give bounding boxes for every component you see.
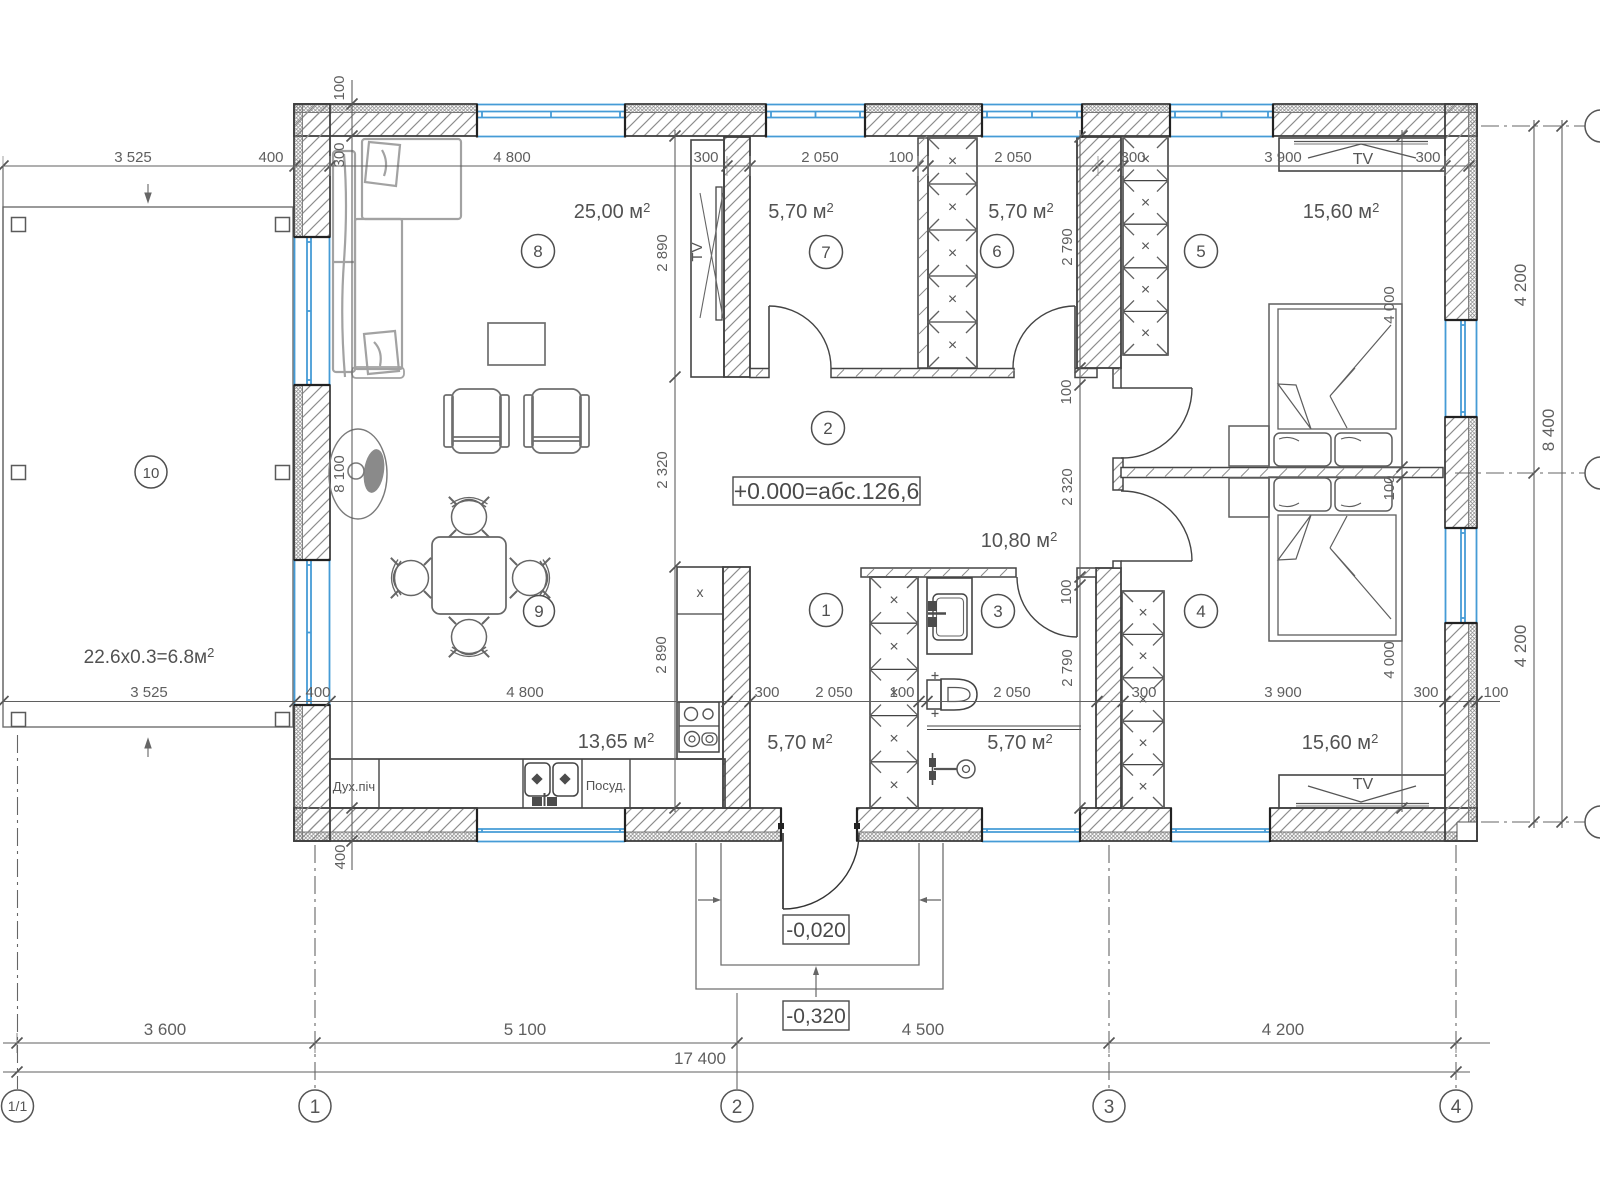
svg-text:2: 2 bbox=[732, 1097, 743, 1118]
svg-text:TV: TV bbox=[1353, 776, 1374, 793]
svg-text:2 790: 2 790 bbox=[1059, 228, 1076, 266]
svg-text:400: 400 bbox=[305, 684, 330, 701]
svg-text:3 900: 3 900 bbox=[1264, 684, 1302, 701]
svg-text:x: x bbox=[697, 584, 704, 600]
svg-text:3: 3 bbox=[1104, 1097, 1115, 1118]
svg-text:100: 100 bbox=[1058, 379, 1075, 404]
svg-text:4 000: 4 000 bbox=[1381, 641, 1398, 679]
svg-text:2: 2 bbox=[823, 419, 832, 438]
svg-text:4: 4 bbox=[1451, 1097, 1462, 1118]
svg-text:400: 400 bbox=[332, 844, 349, 869]
svg-text:5,70 м2: 5,70 м2 bbox=[767, 731, 832, 754]
svg-text:300: 300 bbox=[754, 684, 779, 701]
svg-text:3 600: 3 600 bbox=[144, 1020, 187, 1039]
svg-text:10: 10 bbox=[143, 465, 160, 482]
svg-text:6: 6 bbox=[992, 242, 1001, 261]
svg-text:×: × bbox=[889, 777, 898, 794]
svg-text:8 400: 8 400 bbox=[1539, 409, 1558, 452]
svg-text:300: 300 bbox=[1415, 149, 1440, 166]
svg-text:5: 5 bbox=[1196, 242, 1205, 261]
svg-text:3 525: 3 525 bbox=[114, 149, 152, 166]
svg-text:×: × bbox=[889, 731, 898, 748]
svg-text:25,00 м2: 25,00 м2 bbox=[574, 200, 651, 223]
svg-text:-0,020: -0,020 bbox=[786, 919, 846, 942]
svg-text:2 320: 2 320 bbox=[654, 451, 671, 489]
svg-text:×: × bbox=[1138, 735, 1147, 752]
svg-text:4 800: 4 800 bbox=[493, 149, 531, 166]
svg-text:2 050: 2 050 bbox=[815, 684, 853, 701]
svg-text:Дух.піч: Дух.піч bbox=[333, 779, 375, 794]
svg-text:4 200: 4 200 bbox=[1511, 264, 1530, 307]
svg-text:5,70 м2: 5,70 м2 bbox=[988, 200, 1053, 223]
svg-text:10,80 м2: 10,80 м2 bbox=[981, 529, 1058, 552]
svg-text:8 100: 8 100 bbox=[331, 455, 348, 493]
svg-text:2 050: 2 050 bbox=[801, 149, 839, 166]
svg-text:4 500: 4 500 bbox=[902, 1020, 945, 1039]
svg-text:400: 400 bbox=[258, 149, 283, 166]
svg-text:1/1: 1/1 bbox=[8, 1098, 28, 1114]
svg-text:9: 9 bbox=[534, 602, 543, 621]
svg-text:100: 100 bbox=[1381, 475, 1398, 500]
svg-text:300: 300 bbox=[1413, 684, 1438, 701]
svg-text:1: 1 bbox=[310, 1097, 321, 1118]
svg-text:×: × bbox=[1138, 778, 1147, 795]
svg-text:100: 100 bbox=[1483, 684, 1508, 701]
svg-text:2 320: 2 320 bbox=[1059, 468, 1076, 506]
svg-text:15,60 м2: 15,60 м2 bbox=[1303, 200, 1380, 223]
svg-text:100: 100 bbox=[331, 75, 348, 100]
svg-text:×: × bbox=[948, 153, 957, 170]
svg-text:300: 300 bbox=[693, 149, 718, 166]
svg-text:×: × bbox=[1138, 605, 1147, 622]
svg-text:×: × bbox=[1141, 282, 1150, 299]
svg-text:3 525: 3 525 bbox=[130, 684, 168, 701]
svg-text:×: × bbox=[948, 245, 957, 262]
svg-text:100: 100 bbox=[888, 149, 913, 166]
svg-text:×: × bbox=[889, 592, 898, 609]
svg-text:4 200: 4 200 bbox=[1262, 1020, 1305, 1039]
svg-text:×: × bbox=[948, 291, 957, 308]
svg-text:3 900: 3 900 bbox=[1264, 149, 1302, 166]
svg-text:100: 100 bbox=[889, 684, 914, 701]
svg-text:13,65 м2: 13,65 м2 bbox=[578, 730, 655, 753]
svg-text:4 200: 4 200 bbox=[1511, 625, 1530, 668]
svg-text:8: 8 bbox=[533, 242, 542, 261]
svg-text:2 890: 2 890 bbox=[653, 636, 670, 674]
svg-text:4 000: 4 000 bbox=[1381, 286, 1398, 324]
svg-text:17 400: 17 400 bbox=[674, 1049, 726, 1068]
svg-text:15,60 м2: 15,60 м2 bbox=[1302, 731, 1379, 754]
svg-text:×: × bbox=[948, 337, 957, 354]
svg-text:4 800: 4 800 bbox=[506, 684, 544, 701]
svg-text:2 790: 2 790 bbox=[1059, 649, 1076, 687]
svg-text:300: 300 bbox=[1120, 149, 1145, 166]
svg-text:300: 300 bbox=[331, 142, 348, 167]
svg-text:×: × bbox=[889, 638, 898, 655]
svg-text:×: × bbox=[1141, 238, 1150, 255]
svg-text:7: 7 bbox=[821, 243, 830, 262]
svg-text:2 050: 2 050 bbox=[993, 684, 1031, 701]
svg-text:5,70 м2: 5,70 м2 bbox=[987, 731, 1052, 754]
svg-text:Посуд.: Посуд. bbox=[586, 778, 626, 793]
svg-text:×: × bbox=[1141, 325, 1150, 342]
svg-text:+0.000=абс.126,6: +0.000=абс.126,6 bbox=[734, 478, 920, 504]
svg-text:100: 100 bbox=[1058, 579, 1075, 604]
svg-text:×: × bbox=[948, 199, 957, 216]
svg-text:5,70 м2: 5,70 м2 bbox=[768, 200, 833, 223]
svg-text:2 890: 2 890 bbox=[654, 234, 671, 272]
svg-text:-0,320: -0,320 bbox=[786, 1005, 846, 1028]
svg-text:×: × bbox=[1141, 194, 1150, 211]
svg-text:5 100: 5 100 bbox=[504, 1020, 547, 1039]
svg-text:4: 4 bbox=[1196, 602, 1205, 621]
svg-text:3: 3 bbox=[993, 602, 1002, 621]
svg-text:22.6x0.3=6.8м2: 22.6x0.3=6.8м2 bbox=[84, 645, 215, 668]
svg-text:TV: TV bbox=[689, 242, 706, 261]
svg-text:×: × bbox=[1138, 648, 1147, 665]
svg-text:2 050: 2 050 bbox=[994, 149, 1032, 166]
svg-text:300: 300 bbox=[1131, 684, 1156, 701]
svg-text:1: 1 bbox=[821, 601, 830, 620]
